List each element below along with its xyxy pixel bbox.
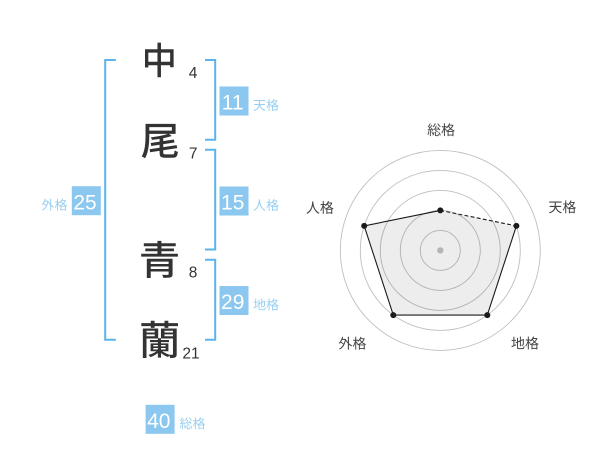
svg-text:40: 40 (147, 410, 170, 433)
svg-text:15: 15 (221, 192, 244, 215)
svg-text:8: 8 (189, 264, 198, 281)
svg-text:25: 25 (73, 191, 96, 214)
svg-text:4: 4 (189, 65, 198, 82)
svg-text:11: 11 (222, 92, 244, 115)
svg-text:29: 29 (221, 291, 244, 314)
svg-text:7: 7 (189, 146, 198, 163)
svg-text:21: 21 (182, 345, 199, 362)
